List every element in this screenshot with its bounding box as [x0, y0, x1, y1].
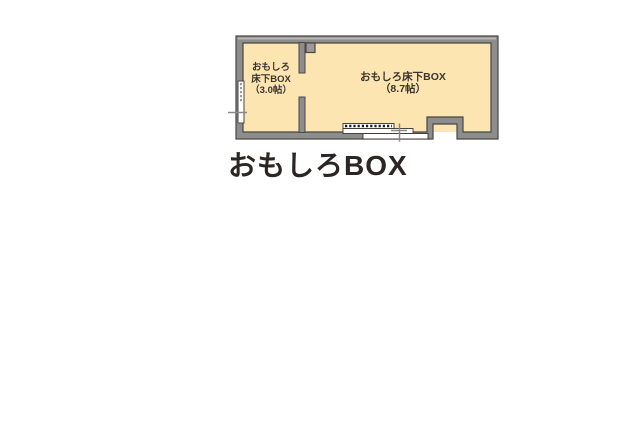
- room-large-label: おもしろ床下BOX （8.7帖）: [308, 71, 498, 95]
- room-large-name: おもしろ床下BOX: [308, 71, 498, 83]
- floorplan-drawing: [0, 0, 640, 427]
- room-small-label: おもしろ 床下BOX （3.0帖）: [243, 62, 299, 97]
- wall-top-highlight: [238, 38, 496, 40]
- divider-wall-upper: [299, 43, 305, 74]
- sliding-door-track-icon: [343, 124, 394, 129]
- room-large-size: （8.7帖）: [308, 83, 498, 95]
- room-small-name-line2: 床下BOX: [243, 74, 299, 86]
- floorplan-page: おもしろ 床下BOX （3.0帖） おもしろ床下BOX （8.7帖） おもしろB…: [0, 0, 640, 427]
- page-title: おもしろBOX: [228, 144, 408, 184]
- room-small-name-line1: おもしろ: [243, 62, 299, 74]
- sliding-door-panel-2: [363, 134, 428, 140]
- wall-pillar: [306, 43, 315, 53]
- room-small-size: （3.0帖）: [243, 85, 299, 97]
- divider-wall-lower: [299, 97, 305, 133]
